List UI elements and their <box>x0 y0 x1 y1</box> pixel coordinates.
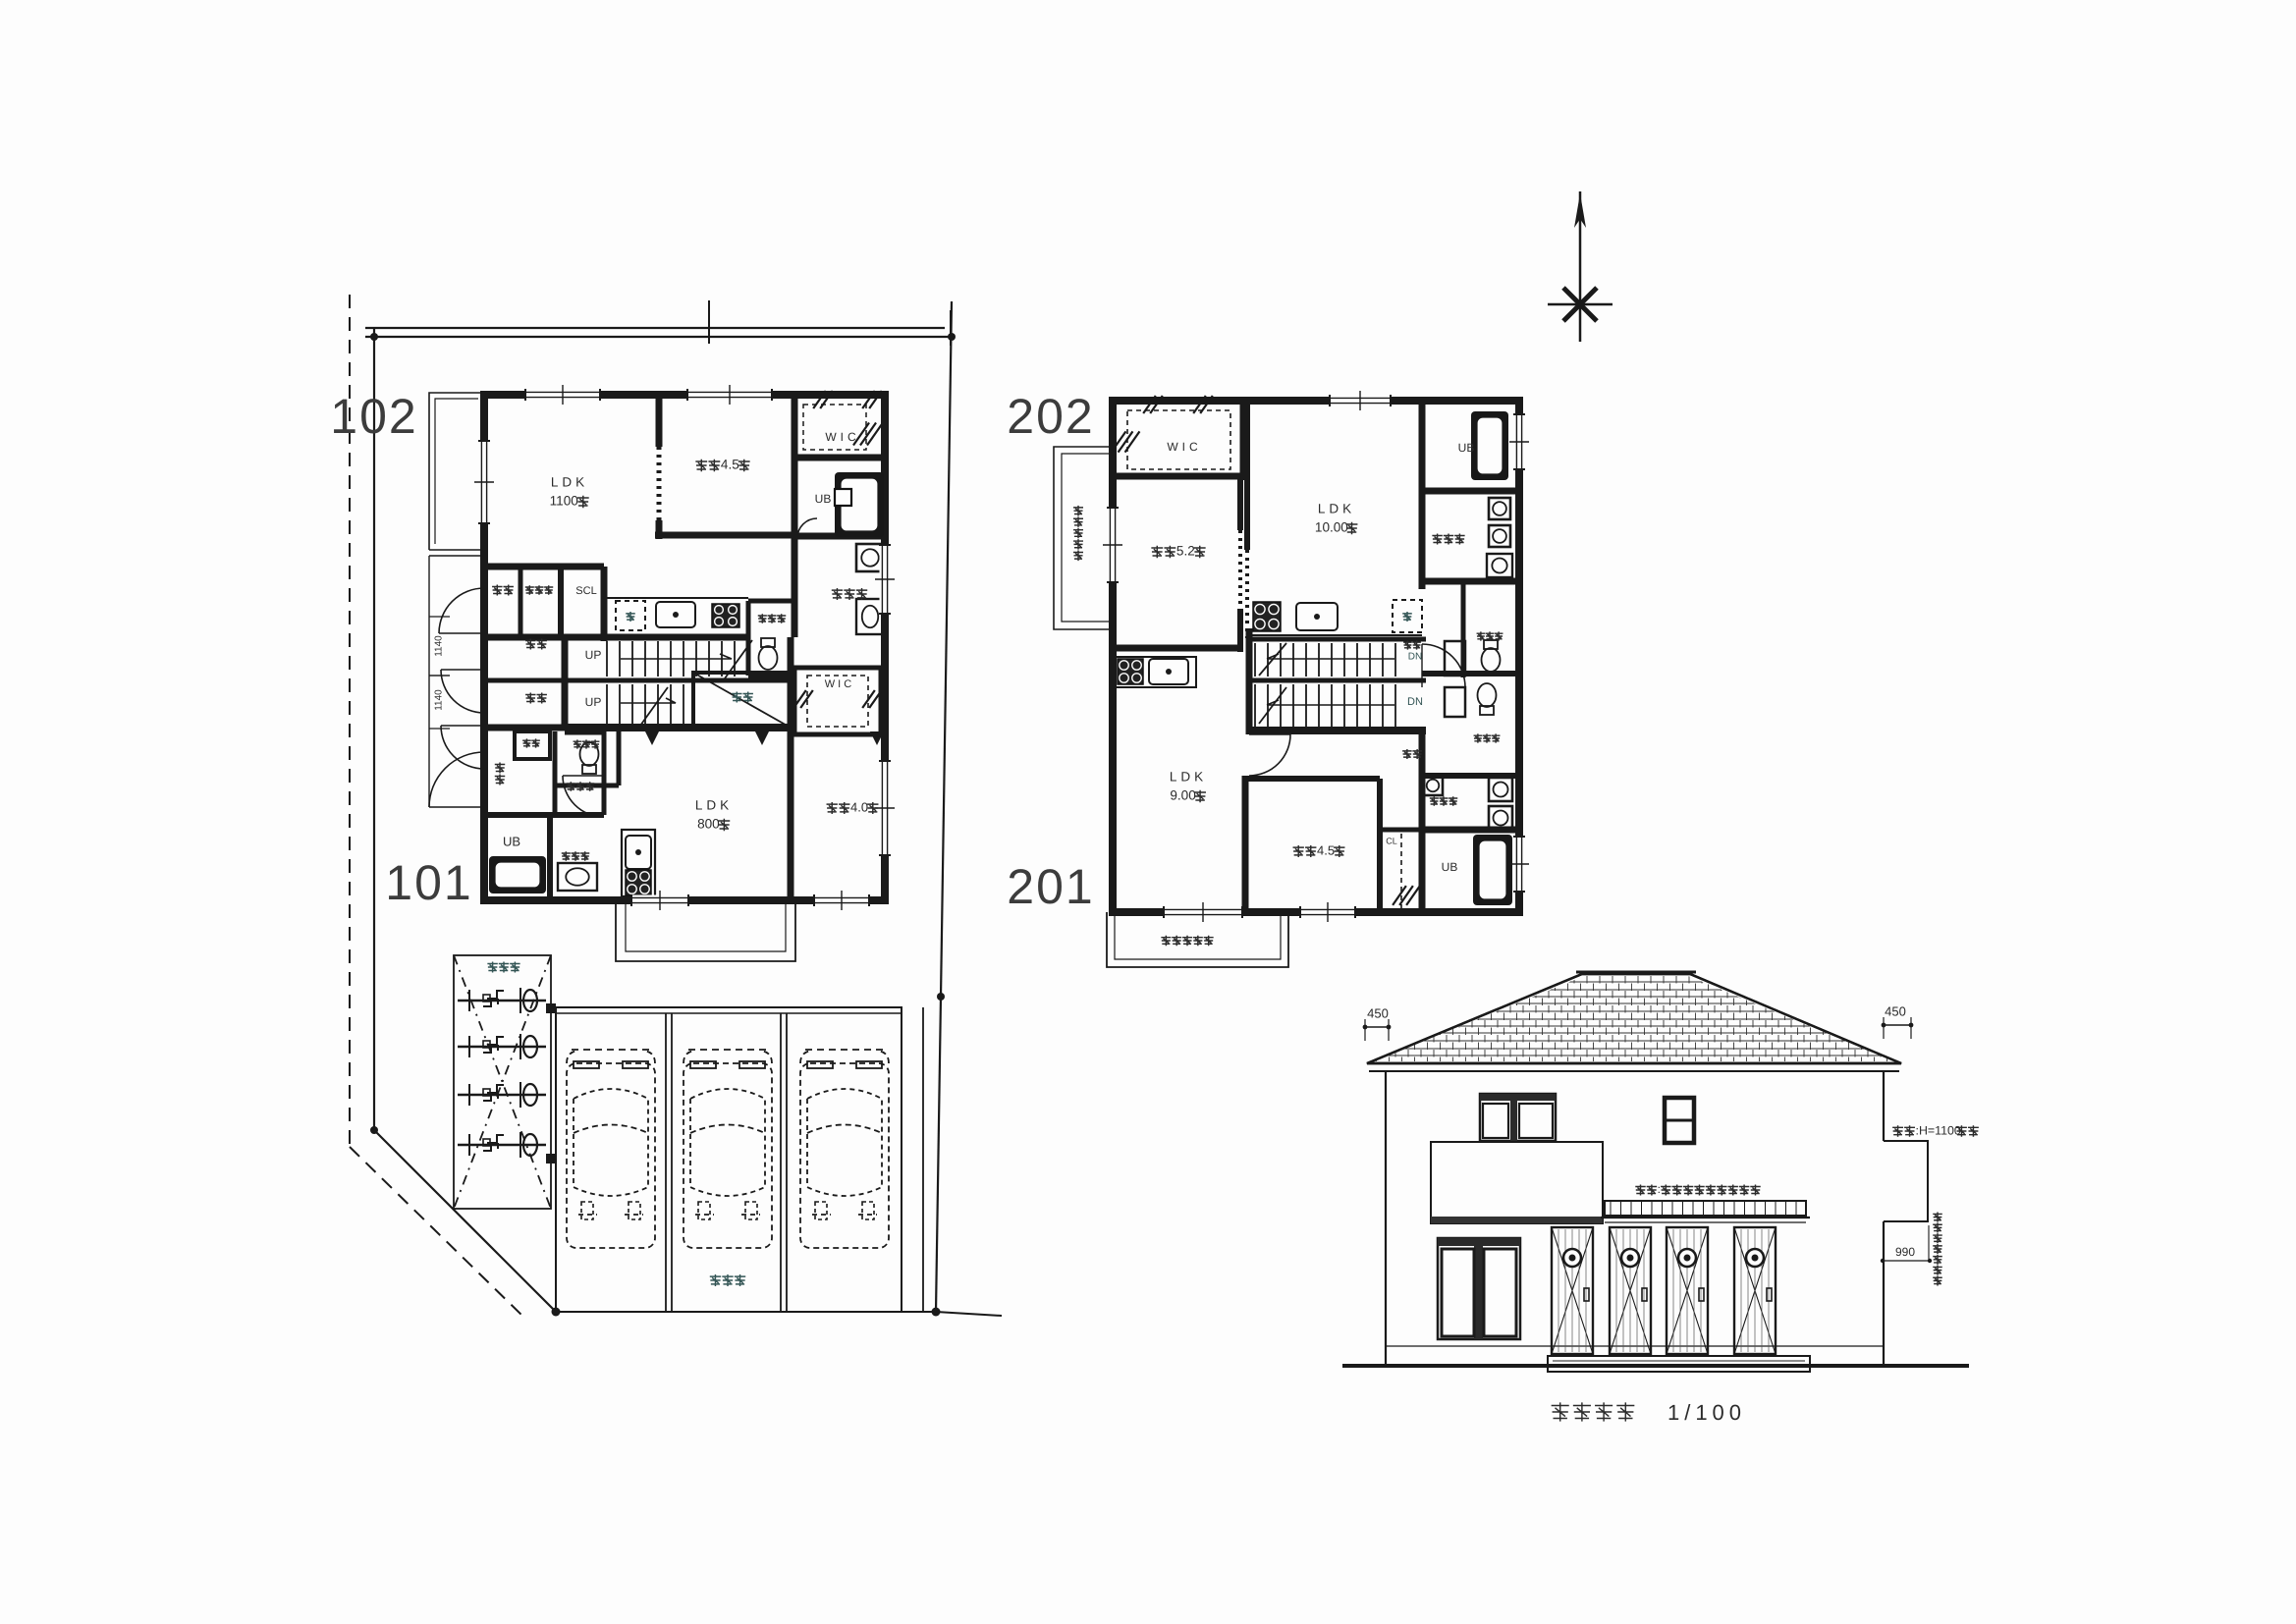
svg-text:WIC: WIC <box>1167 440 1201 454</box>
svg-text:1100: 1100 <box>550 494 579 509</box>
svg-text:LDK: LDK <box>551 475 588 490</box>
svg-text:4.5: 4.5 <box>1317 842 1335 857</box>
svg-text:UB: UB <box>1458 441 1475 455</box>
svg-text::H=1100: :H=1100 <box>1916 1123 1961 1137</box>
svg-text:450: 450 <box>1367 1005 1389 1020</box>
svg-text:SCL: SCL <box>575 585 596 597</box>
svg-text:DN: DN <box>1407 696 1423 708</box>
svg-text:1/100: 1/100 <box>1667 1400 1746 1425</box>
svg-text:450: 450 <box>1885 1003 1906 1018</box>
svg-text:102: 102 <box>330 389 417 444</box>
svg-text::: : <box>1658 1182 1661 1196</box>
svg-text:LDK: LDK <box>695 798 733 813</box>
svg-text:UP: UP <box>585 648 602 662</box>
svg-text:201: 201 <box>1007 859 1094 914</box>
svg-text:UB: UB <box>1442 860 1458 874</box>
svg-text:UB: UB <box>815 492 832 506</box>
svg-text:990: 990 <box>1895 1245 1915 1259</box>
svg-text:4.5: 4.5 <box>721 458 739 472</box>
svg-text:CL: CL <box>1386 836 1397 845</box>
svg-text:202: 202 <box>1007 389 1094 444</box>
svg-text:9.00: 9.00 <box>1170 788 1196 803</box>
svg-text:5.2: 5.2 <box>1176 544 1195 559</box>
svg-text:UP: UP <box>585 695 602 709</box>
svg-text:1140: 1140 <box>434 635 445 657</box>
svg-text:1140: 1140 <box>434 689 445 711</box>
svg-text:WIC: WIC <box>825 430 859 444</box>
svg-text:LDK: LDK <box>1170 770 1207 785</box>
svg-text:DN: DN <box>1408 652 1422 663</box>
svg-text:10.00: 10.00 <box>1315 520 1348 535</box>
svg-text:4.0: 4.0 <box>850 799 868 814</box>
svg-text:WIC: WIC <box>825 678 854 690</box>
svg-text:101: 101 <box>385 855 472 910</box>
svg-text:800: 800 <box>697 817 720 832</box>
svg-text:UB: UB <box>503 834 520 848</box>
svg-text:LDK: LDK <box>1318 502 1355 516</box>
